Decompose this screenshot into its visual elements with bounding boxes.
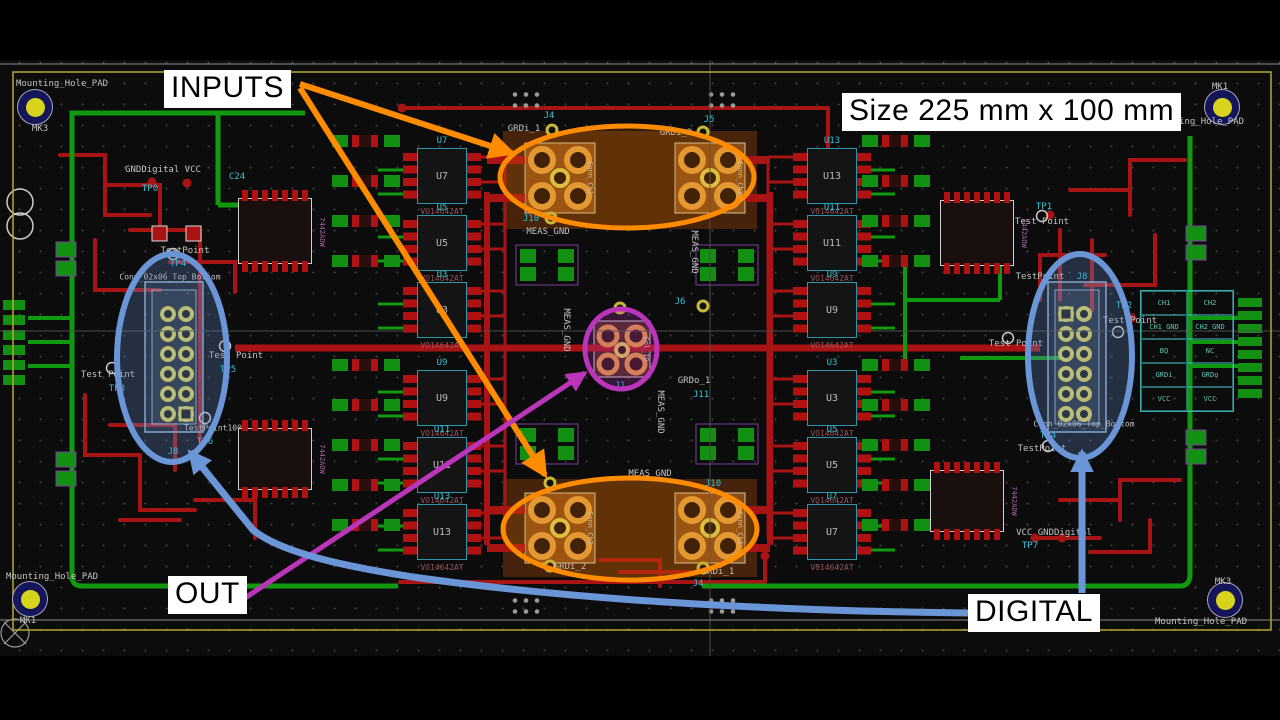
size-label: Size 225 mm x 100 mm: [842, 93, 1181, 131]
inputs-label: INPUTS: [164, 70, 291, 108]
digital-label: DIGITAL: [968, 594, 1100, 632]
pcb-screenshot-stage: CH1CH2CH1_GNDCH2_GNDBQNCGRDiGRDoVCCVCC G…: [0, 0, 1280, 720]
out-label: OUT: [168, 576, 247, 614]
annotation-labels: INPUTS Size 225 mm x 100 mm OUT DIGITAL: [0, 0, 1280, 720]
